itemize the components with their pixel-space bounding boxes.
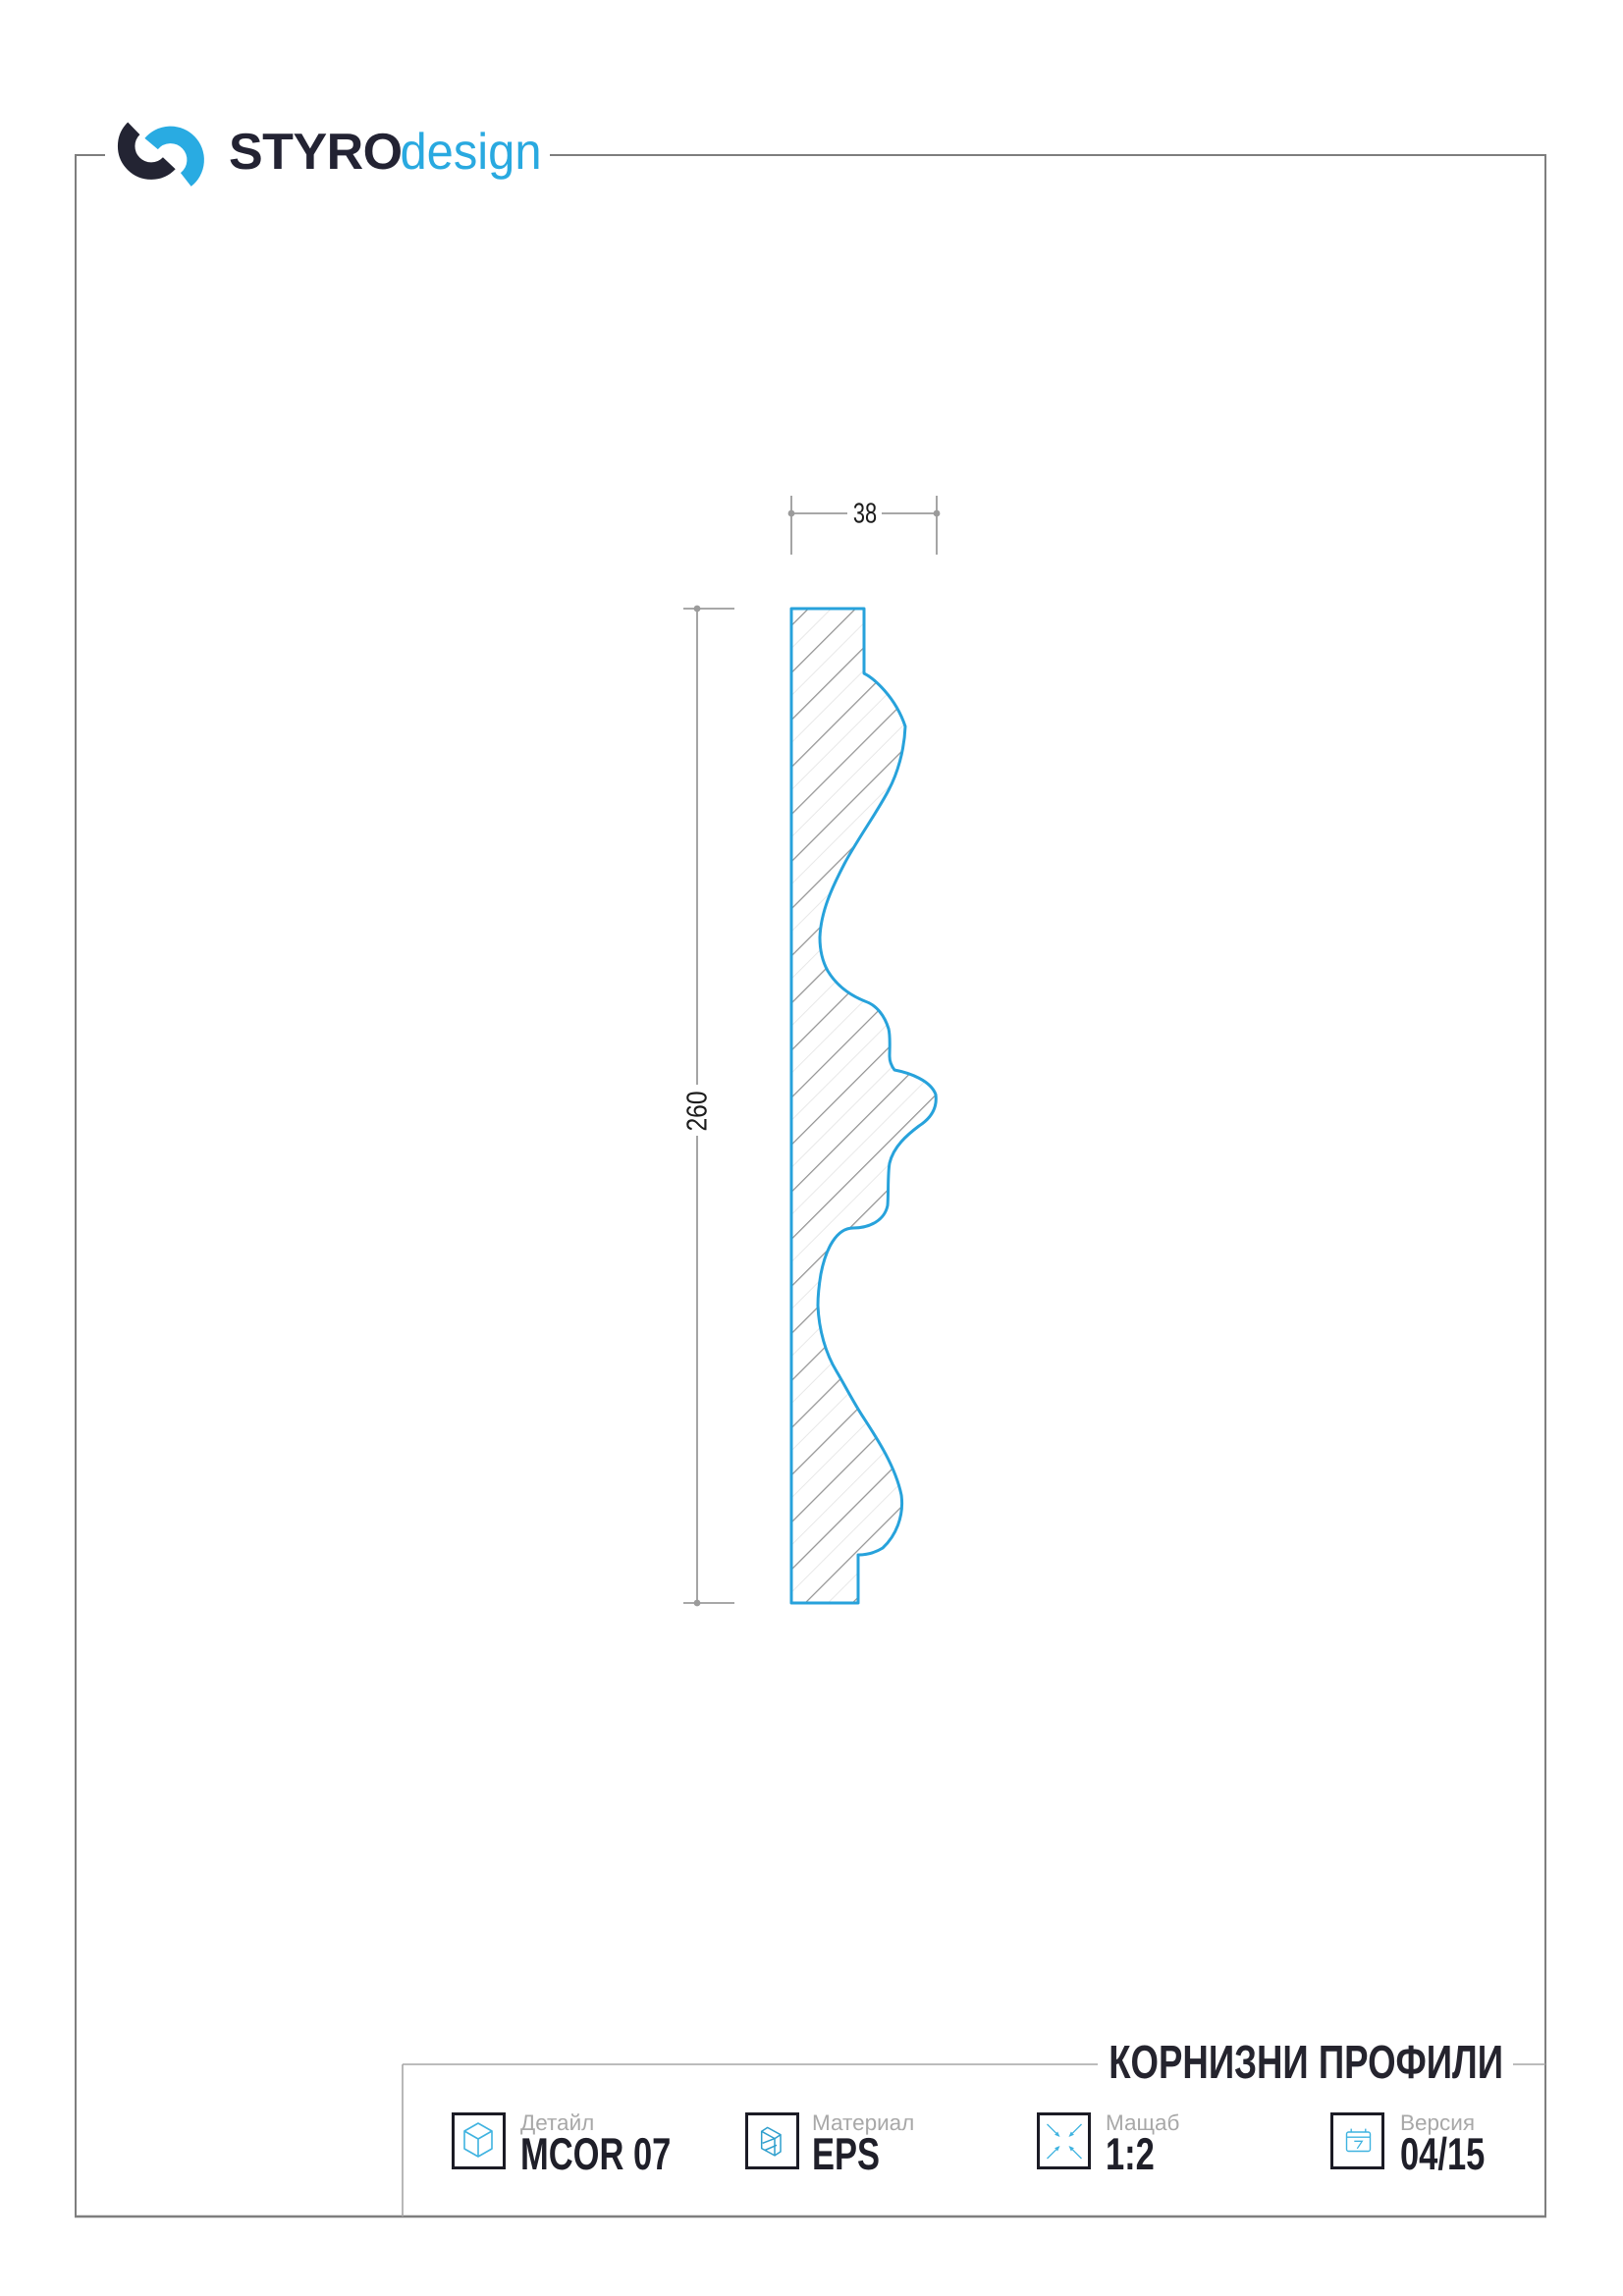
svg-text:design: design (401, 124, 542, 181)
svg-text:STYRO: STYRO (229, 124, 403, 181)
svg-text:MCOR 07: MCOR 07 (520, 2128, 671, 2179)
svg-text:КОРНИЗНИ ПРОФИЛИ: КОРНИЗНИ ПРОФИЛИ (1109, 2037, 1503, 2089)
svg-text:EPS: EPS (812, 2128, 880, 2179)
svg-text:260: 260 (682, 1091, 714, 1131)
svg-text:1:2: 1:2 (1106, 2128, 1155, 2179)
svg-text:04/15: 04/15 (1400, 2128, 1485, 2179)
svg-text:38: 38 (853, 499, 877, 530)
